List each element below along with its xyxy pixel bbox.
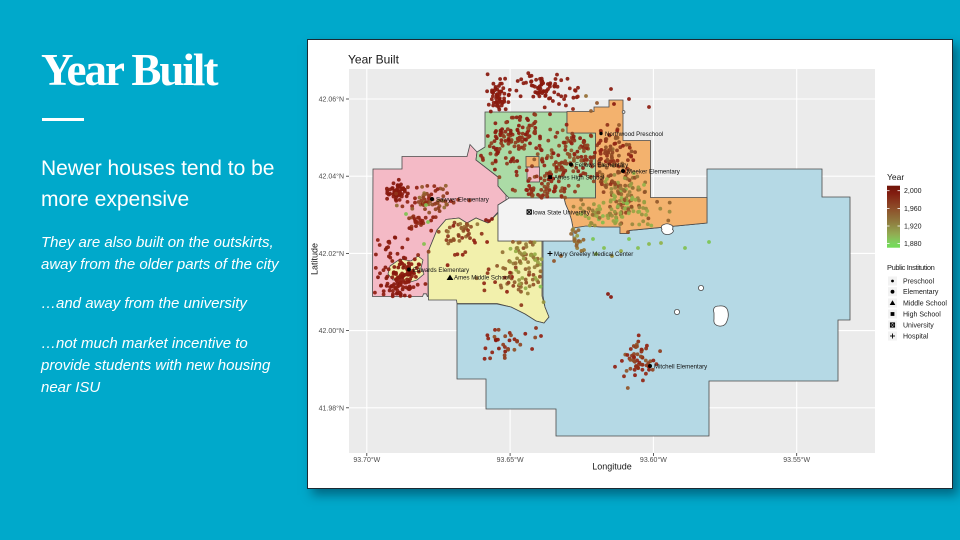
svg-text:Year Built: Year Built <box>348 53 400 67</box>
svg-text:High School: High School <box>903 312 941 319</box>
svg-text:41.98°N: 41.98°N <box>319 404 344 412</box>
svg-text:42.06°N: 42.06°N <box>319 96 344 104</box>
svg-text:42.00°N: 42.00°N <box>319 327 344 335</box>
svg-text:Ames High School: Ames High School <box>554 175 604 182</box>
svg-text:93.70°W: 93.70°W <box>353 456 380 464</box>
svg-text:Public Institution: Public Institution <box>887 263 935 272</box>
svg-text:93.60°W: 93.60°W <box>640 456 667 464</box>
svg-text:University: University <box>903 323 934 330</box>
svg-text:Edwards Elementary: Edwards Elementary <box>413 267 470 274</box>
svg-text:Northwood Preschool: Northwood Preschool <box>605 131 663 138</box>
svg-text:93.55°W: 93.55°W <box>783 456 810 464</box>
svg-text:Hospital: Hospital <box>903 334 929 341</box>
svg-text:93.65°W: 93.65°W <box>497 456 524 464</box>
svg-text:Fellows Elementary: Fellows Elementary <box>575 162 629 169</box>
svg-text:Sawyer Elementary: Sawyer Elementary <box>436 197 490 204</box>
svg-text:Ames Middle School: Ames Middle School <box>454 275 510 282</box>
svg-text:Preschool: Preschool <box>903 279 935 286</box>
svg-text:Meeker Elementary: Meeker Elementary <box>627 169 681 176</box>
svg-text:Latitude: Latitude <box>310 243 320 275</box>
svg-text:Iowa State University: Iowa State University <box>533 210 591 217</box>
svg-text:1,960: 1,960 <box>904 206 922 213</box>
svg-text:2,000: 2,000 <box>904 188 922 195</box>
svg-text:Mitchell Elementary: Mitchell Elementary <box>654 364 708 371</box>
svg-text:Year: Year <box>887 172 904 182</box>
svg-text:Longitude: Longitude <box>592 462 632 472</box>
svg-text:42.04°N: 42.04°N <box>319 173 344 181</box>
svg-text:Mary Greeley Medical Center: Mary Greeley Medical Center <box>554 251 633 258</box>
svg-text:1,880: 1,880 <box>904 241 922 248</box>
svg-text:42.02°N: 42.02°N <box>319 250 344 258</box>
svg-text:Middle School: Middle School <box>903 301 947 308</box>
svg-text:1,920: 1,920 <box>904 224 922 231</box>
svg-text:Elementary: Elementary <box>903 289 939 296</box>
